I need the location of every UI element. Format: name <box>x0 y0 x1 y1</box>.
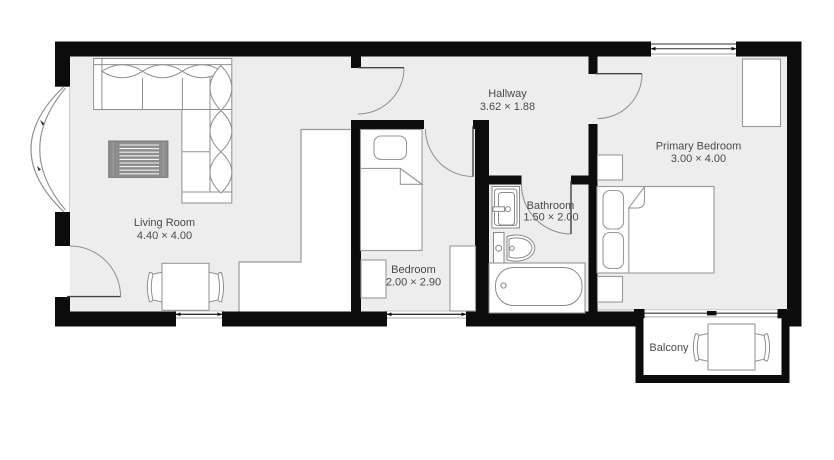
svg-text:3.62 × 1.88: 3.62 × 1.88 <box>480 101 535 113</box>
svg-text:Hallway: Hallway <box>488 88 527 100</box>
svg-text:3.00 × 4.00: 3.00 × 4.00 <box>671 153 726 165</box>
svg-text:4.40 × 4.00: 4.40 × 4.00 <box>137 230 192 242</box>
svg-text:Primary Bedroom: Primary Bedroom <box>656 141 742 153</box>
svg-text:2.00 × 2.90: 2.00 × 2.90 <box>386 277 441 289</box>
svg-text:Bedroom: Bedroom <box>391 264 436 276</box>
svg-text:Living Room: Living Room <box>134 217 195 229</box>
svg-text:1.50 × 2.00: 1.50 × 2.00 <box>523 212 578 224</box>
svg-text:Bathroom: Bathroom <box>527 200 575 212</box>
svg-text:Balcony: Balcony <box>649 342 689 354</box>
